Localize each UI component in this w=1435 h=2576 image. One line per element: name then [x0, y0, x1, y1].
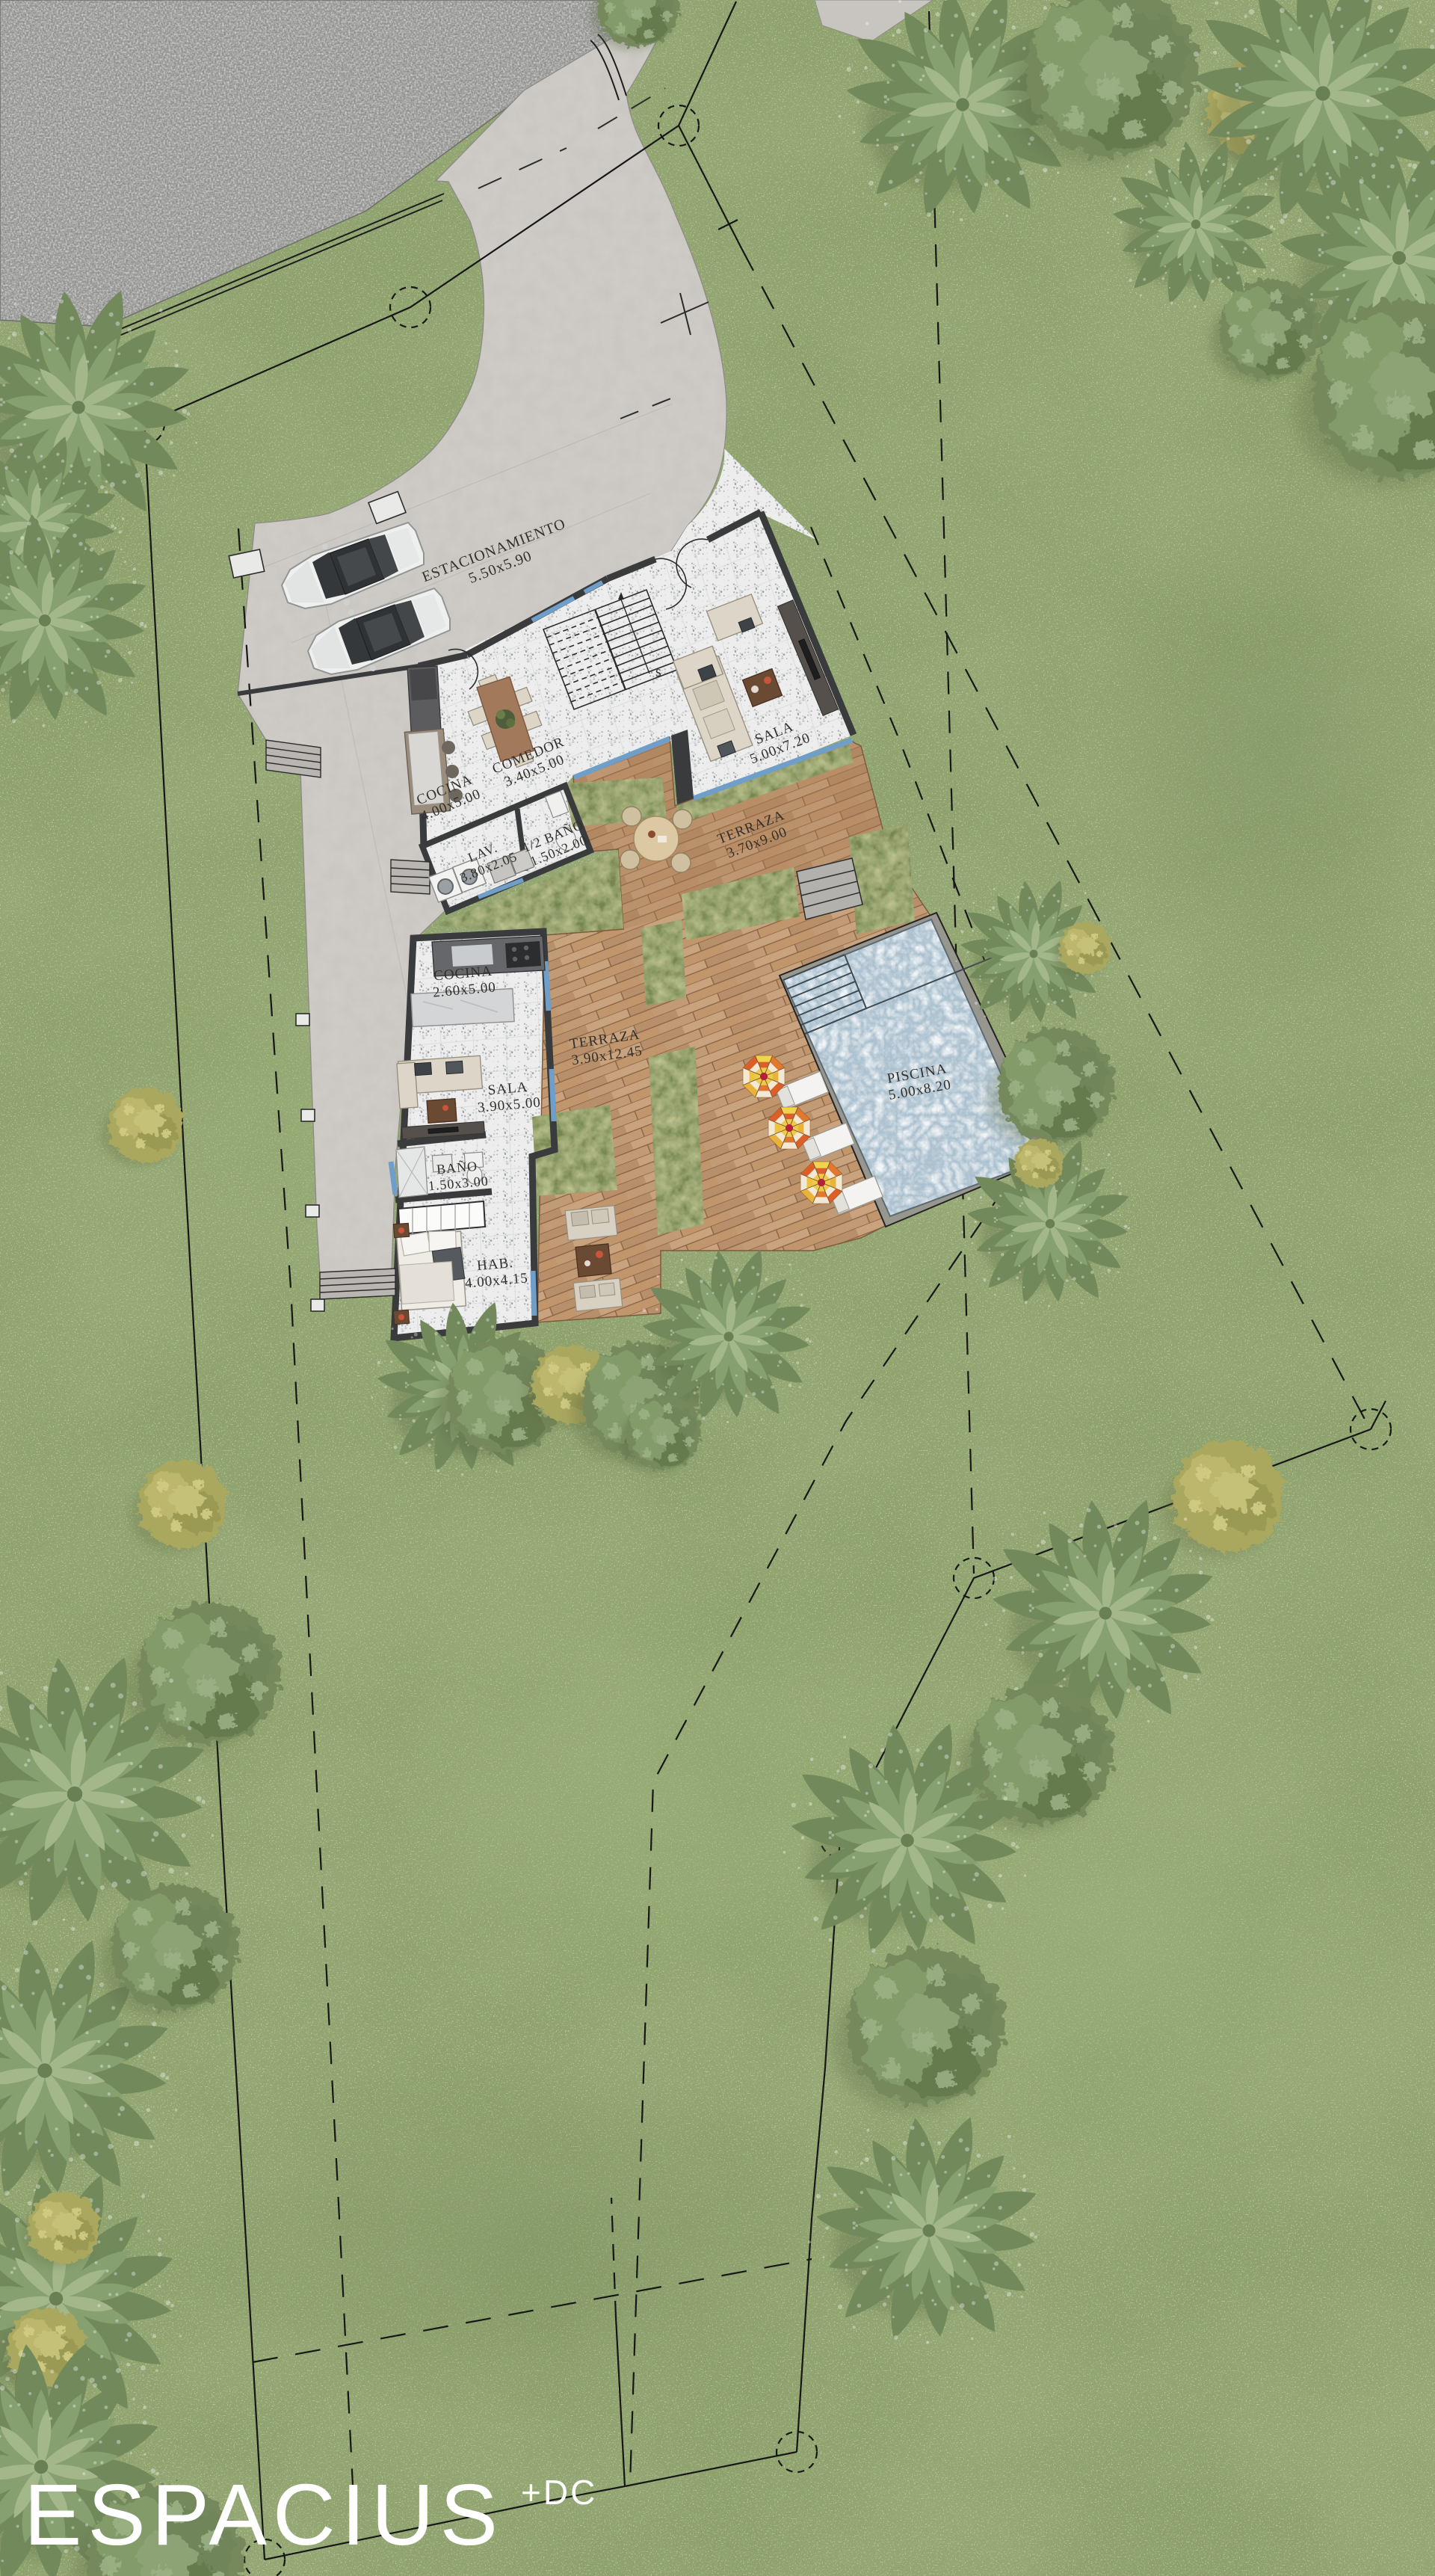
svg-text:+DC: +DC [521, 2473, 597, 2512]
svg-text:ESPACIUS: ESPACIUS [24, 2466, 504, 2563]
svg-text:s: s [655, 664, 661, 680]
svg-text:HAB.: HAB. [476, 1255, 514, 1274]
